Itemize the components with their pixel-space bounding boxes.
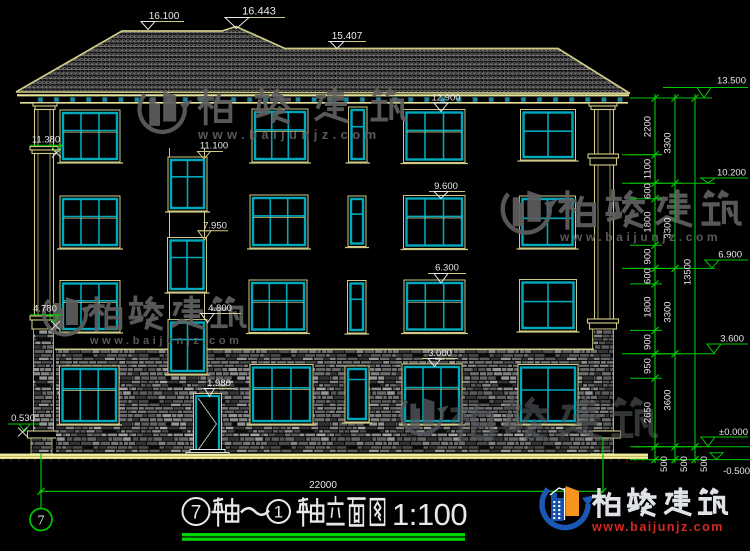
svg-text:950: 950 bbox=[643, 358, 654, 374]
svg-text:11.380: 11.380 bbox=[32, 135, 60, 146]
svg-text:6.300: 6.300 bbox=[435, 263, 459, 274]
svg-text:16.443: 16.443 bbox=[242, 6, 276, 18]
svg-text:600: 600 bbox=[643, 183, 654, 199]
svg-text:3300: 3300 bbox=[663, 132, 674, 153]
svg-text:www.baijunjz.com: www.baijunjz.com bbox=[559, 230, 721, 244]
svg-text:7: 7 bbox=[38, 514, 45, 529]
svg-text:www.baijunjz.com: www.baijunjz.com bbox=[591, 520, 724, 534]
svg-text:4.800: 4.800 bbox=[208, 303, 232, 314]
svg-text:500: 500 bbox=[699, 456, 710, 472]
svg-text:13500: 13500 bbox=[683, 259, 694, 285]
svg-text:13.500: 13.500 bbox=[717, 76, 746, 87]
svg-text:2200: 2200 bbox=[643, 116, 654, 137]
svg-text:4.780: 4.780 bbox=[33, 304, 57, 315]
svg-text:9.600: 9.600 bbox=[434, 181, 458, 192]
svg-text:7.950: 7.950 bbox=[203, 221, 227, 232]
svg-text:7: 7 bbox=[191, 503, 202, 524]
svg-text:1:100: 1:100 bbox=[392, 497, 467, 532]
svg-text:900: 900 bbox=[643, 249, 654, 265]
svg-text:6.900: 6.900 bbox=[718, 250, 742, 261]
svg-text:11.100: 11.100 bbox=[200, 141, 228, 152]
svg-text:1800: 1800 bbox=[643, 211, 654, 232]
svg-text:12.900: 12.900 bbox=[431, 93, 460, 104]
svg-text:1: 1 bbox=[274, 503, 283, 522]
svg-text:3.000: 3.000 bbox=[428, 348, 452, 359]
svg-text:±0.000: ±0.000 bbox=[719, 427, 748, 438]
svg-text:900: 900 bbox=[643, 334, 654, 350]
svg-text:3.600: 3.600 bbox=[720, 334, 744, 345]
svg-text:500: 500 bbox=[659, 456, 670, 472]
svg-text:2650: 2650 bbox=[643, 402, 654, 423]
svg-text:1800: 1800 bbox=[643, 296, 654, 317]
svg-text:0.530: 0.530 bbox=[11, 413, 35, 424]
svg-text:10.200: 10.200 bbox=[717, 168, 746, 179]
svg-text:-0.500: -0.500 bbox=[723, 466, 750, 477]
svg-text:22000: 22000 bbox=[309, 480, 337, 491]
svg-text:3300: 3300 bbox=[663, 217, 674, 238]
svg-text:15.407: 15.407 bbox=[332, 31, 363, 42]
svg-text:600: 600 bbox=[643, 268, 654, 284]
svg-text:3600: 3600 bbox=[663, 389, 674, 410]
svg-text:16.100: 16.100 bbox=[149, 11, 180, 22]
svg-text:1100: 1100 bbox=[643, 159, 654, 179]
svg-text:500: 500 bbox=[679, 456, 690, 472]
svg-text:1.980: 1.980 bbox=[207, 378, 231, 389]
svg-text:www.baijunjz.com: www.baijunjz.com bbox=[89, 335, 243, 347]
svg-text:3300: 3300 bbox=[663, 301, 674, 322]
